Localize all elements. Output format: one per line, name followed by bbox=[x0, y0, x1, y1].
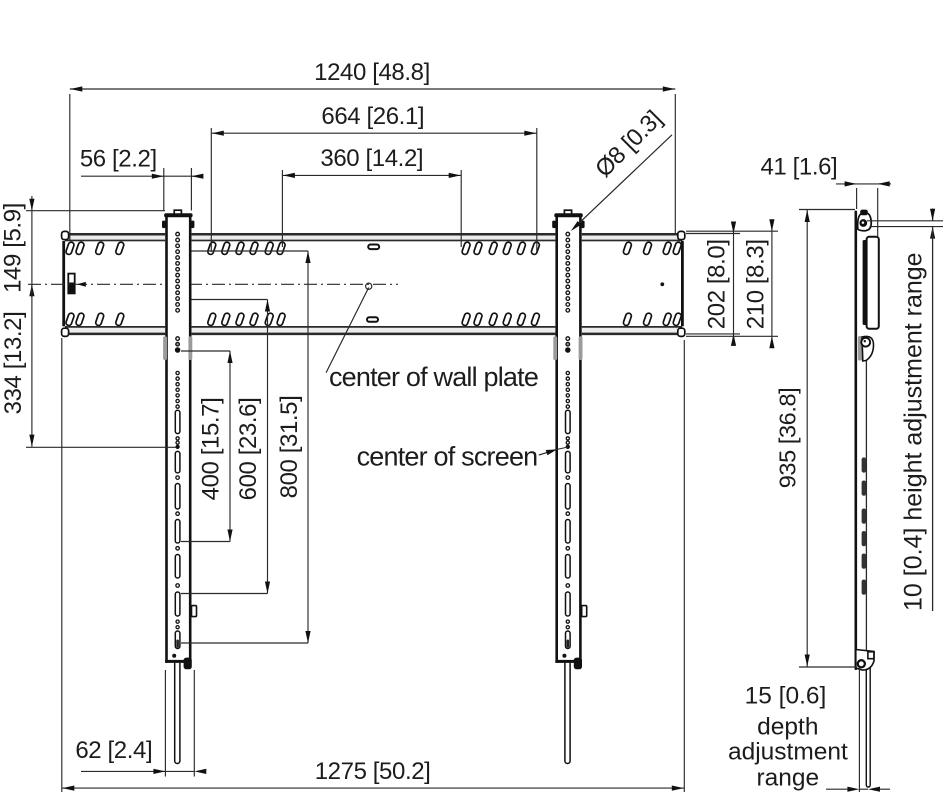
svg-text:935 [36.8]: 935 [36.8] bbox=[775, 388, 801, 489]
svg-text:center of screen: center of screen bbox=[357, 442, 538, 472]
svg-text:10 [0.4] height adjustment ran: 10 [0.4] height adjustment range bbox=[900, 252, 928, 611]
svg-text:62 [2.4]: 62 [2.4] bbox=[75, 737, 152, 764]
svg-text:210 [8.3]: 210 [8.3] bbox=[743, 239, 770, 329]
svg-text:664 [26.1]: 664 [26.1] bbox=[321, 103, 424, 130]
svg-text:400 [15.7]: 400 [15.7] bbox=[198, 398, 225, 501]
svg-text:41 [1.6]: 41 [1.6] bbox=[760, 154, 837, 181]
svg-text:range: range bbox=[756, 765, 819, 792]
svg-text:depth: depth bbox=[757, 714, 818, 741]
svg-text:56 [2.2]: 56 [2.2] bbox=[80, 146, 157, 173]
svg-text:1240 [48.8]: 1240 [48.8] bbox=[314, 59, 430, 86]
svg-text:800 [31.5]: 800 [31.5] bbox=[276, 396, 303, 499]
svg-text:15 [0.6]: 15 [0.6] bbox=[745, 683, 827, 710]
svg-text:1275 [50.2]: 1275 [50.2] bbox=[315, 758, 431, 785]
svg-text:202 [8.0]: 202 [8.0] bbox=[704, 239, 731, 329]
svg-text:600 [23.6]: 600 [23.6] bbox=[235, 398, 262, 501]
svg-text:149 [5.9]: 149 [5.9] bbox=[0, 203, 27, 293]
svg-text:360 [14.2]: 360 [14.2] bbox=[320, 145, 423, 172]
svg-text:center of wall plate: center of wall plate bbox=[329, 362, 538, 392]
svg-text:adjustment: adjustment bbox=[728, 739, 848, 766]
svg-text:334 [13.2]: 334 [13.2] bbox=[0, 312, 27, 415]
